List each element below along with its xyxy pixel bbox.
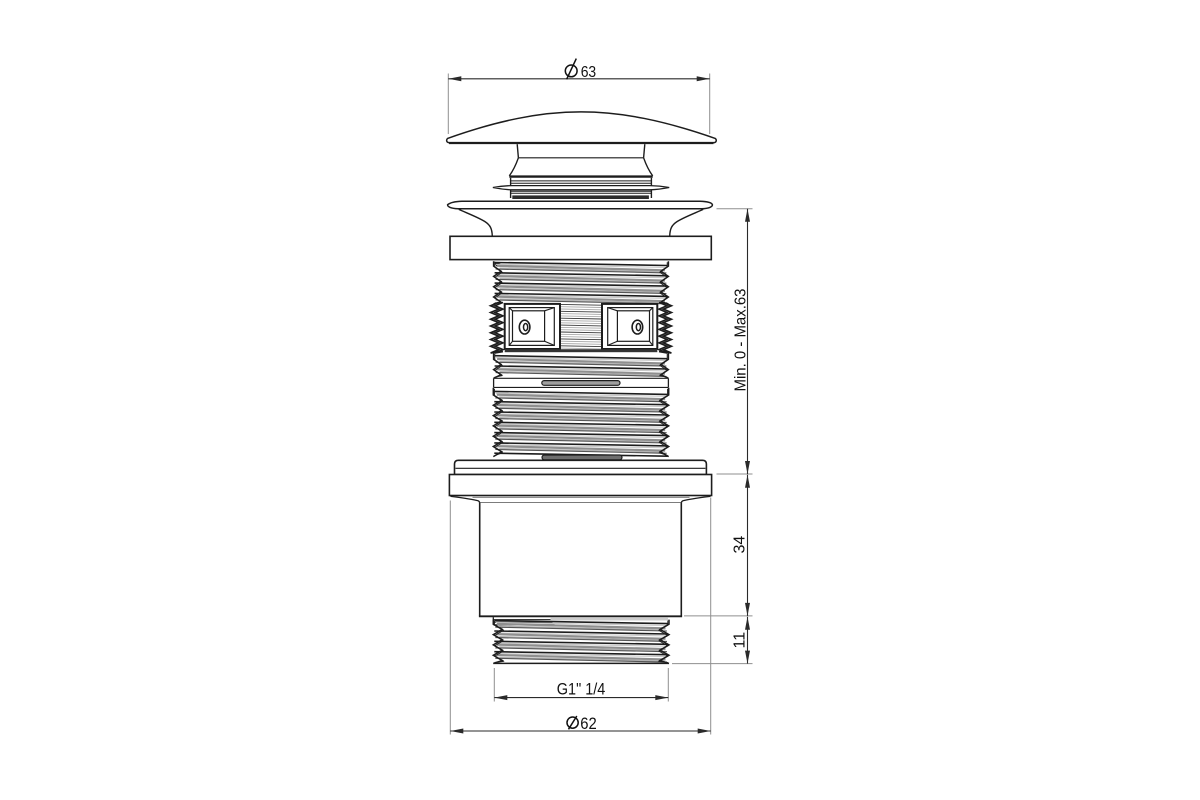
svg-text:62: 62 [580,714,597,733]
svg-text:11: 11 [732,632,749,649]
svg-text:34: 34 [732,536,749,554]
svg-text:63: 63 [581,64,597,81]
svg-text:Min. 0 - Max.63: Min. 0 - Max.63 [732,288,749,391]
svg-text:G1" 1/4: G1" 1/4 [557,680,606,698]
